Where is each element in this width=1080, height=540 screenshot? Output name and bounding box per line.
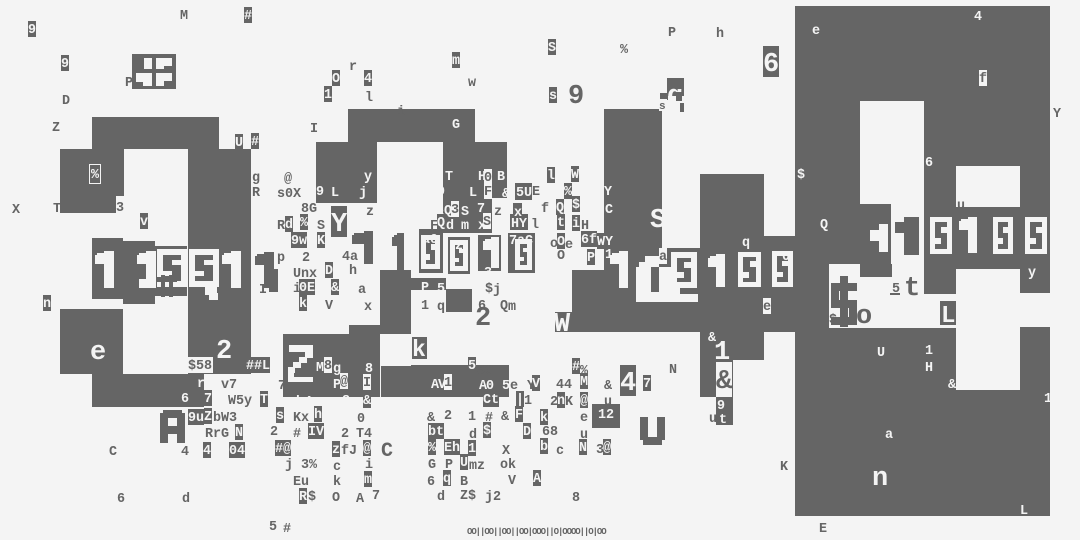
svg-text:C: C — [109, 445, 117, 460]
svg-text:@: @ — [580, 394, 588, 409]
svg-text:OO||OO||OO||OO|OOO||O|OOOO||O|: OO||OO||OO||OO|OOO||O|OOOO||O|OO — [467, 527, 607, 537]
svg-text:z: z — [477, 459, 485, 474]
svg-text:2: 2 — [341, 427, 349, 442]
svg-text:1: 1 — [444, 376, 452, 391]
svg-text:B: B — [497, 170, 505, 185]
svg-text:b: b — [428, 425, 436, 440]
svg-text:D: D — [438, 396, 446, 411]
svg-text:a: a — [350, 250, 358, 265]
svg-text:h: h — [314, 408, 322, 423]
svg-text:t: t — [491, 393, 499, 408]
svg-text:&: & — [502, 187, 510, 202]
svg-text:N: N — [579, 441, 587, 456]
svg-text:C: C — [605, 203, 613, 218]
svg-text:Q: Q — [820, 218, 828, 233]
svg-text:u: u — [196, 411, 204, 426]
svg-text:u: u — [301, 475, 309, 490]
svg-text:T: T — [260, 393, 268, 408]
svg-text:E: E — [293, 475, 301, 490]
svg-text:k: k — [540, 411, 548, 426]
svg-text:2: 2 — [444, 409, 452, 424]
svg-text:0: 0 — [782, 250, 790, 265]
svg-text:8: 8 — [572, 491, 580, 506]
svg-text:t: t — [436, 425, 444, 440]
svg-text:5: 5 — [437, 282, 445, 297]
svg-text:P: P — [668, 26, 676, 41]
svg-text:V: V — [325, 299, 334, 314]
svg-text:1: 1 — [421, 299, 429, 314]
svg-text:E: E — [444, 441, 452, 456]
svg-text:M: M — [316, 361, 324, 376]
svg-text:k: k — [508, 458, 516, 473]
svg-text:3: 3 — [451, 203, 459, 218]
svg-text:z: z — [494, 205, 502, 220]
svg-text:e: e — [763, 300, 771, 315]
svg-text:V: V — [508, 474, 517, 489]
svg-text:7: 7 — [509, 234, 517, 249]
svg-text:%: % — [300, 216, 309, 231]
svg-text:H: H — [925, 361, 933, 376]
svg-text:p: p — [277, 251, 285, 266]
svg-text:1: 1 — [605, 248, 613, 263]
svg-text:I: I — [310, 122, 318, 137]
svg-text:e: e — [580, 411, 588, 426]
svg-text:Z: Z — [460, 489, 468, 504]
svg-text:Z: Z — [204, 410, 212, 425]
svg-text:h: h — [716, 27, 724, 42]
svg-text:$: $ — [308, 490, 316, 505]
svg-text:R: R — [252, 186, 261, 201]
svg-text:U: U — [235, 136, 243, 151]
svg-text:8: 8 — [550, 425, 558, 440]
svg-text:&: & — [363, 394, 371, 409]
svg-text:7: 7 — [229, 378, 237, 393]
svg-text:g: g — [252, 171, 260, 186]
svg-text:i: i — [572, 217, 580, 232]
svg-text:j: j — [485, 490, 493, 505]
svg-text:r: r — [213, 427, 221, 442]
svg-text:3: 3 — [484, 266, 492, 281]
svg-text:8: 8 — [204, 359, 212, 374]
svg-text:$: $ — [485, 282, 493, 297]
svg-text:2: 2 — [302, 251, 310, 266]
svg-text:L: L — [262, 359, 270, 374]
svg-text:K: K — [317, 234, 326, 249]
svg-text:1: 1 — [598, 408, 606, 423]
svg-text:j: j — [359, 186, 367, 201]
svg-text:5: 5 — [477, 364, 485, 379]
svg-text:%: % — [309, 458, 318, 473]
svg-text:n: n — [43, 297, 51, 312]
svg-text:k: k — [412, 337, 426, 363]
svg-text:f: f — [979, 72, 987, 87]
svg-text:z: z — [332, 443, 340, 458]
svg-text:n: n — [557, 394, 565, 409]
svg-text:4: 4 — [181, 445, 189, 460]
svg-text:B: B — [460, 475, 468, 490]
svg-text:W: W — [597, 235, 606, 250]
svg-text:5: 5 — [196, 359, 204, 374]
svg-text:c: c — [333, 460, 341, 475]
svg-text:6: 6 — [763, 50, 779, 80]
svg-text:S: S — [650, 206, 666, 236]
svg-text:L: L — [941, 303, 955, 330]
svg-text:G: G — [221, 427, 229, 442]
svg-text:Q: Q — [556, 201, 564, 216]
svg-text:W: W — [554, 310, 571, 340]
svg-text:4: 4 — [237, 444, 245, 459]
svg-text:t: t — [557, 216, 565, 231]
svg-text:U: U — [524, 186, 532, 201]
svg-text:&: & — [604, 379, 612, 394]
svg-text:L: L — [1020, 504, 1028, 519]
svg-text:&: & — [708, 331, 716, 346]
svg-text:t: t — [904, 274, 920, 304]
svg-text:3: 3 — [301, 458, 309, 473]
svg-text:8: 8 — [342, 394, 350, 409]
svg-text:S: S — [483, 215, 491, 230]
svg-text:Q: Q — [500, 299, 508, 314]
svg-text:I: I — [308, 425, 316, 440]
svg-text:w: w — [299, 234, 307, 249]
svg-text:4: 4 — [364, 427, 372, 442]
svg-text:1: 1 — [1044, 392, 1052, 407]
svg-text:F: F — [515, 408, 523, 423]
svg-text:K: K — [565, 395, 574, 410]
svg-text:X: X — [293, 187, 302, 202]
svg-text:9: 9 — [188, 411, 196, 426]
svg-text:P: P — [421, 281, 429, 296]
svg-text:Q: Q — [437, 216, 445, 231]
svg-text:m: m — [461, 219, 469, 234]
svg-text:G: G — [309, 202, 317, 217]
svg-text:&: & — [716, 367, 733, 397]
svg-text:R: R — [299, 490, 308, 505]
svg-text:N: N — [669, 363, 677, 378]
svg-text:E: E — [819, 522, 827, 537]
svg-text:m: m — [469, 459, 477, 474]
svg-text:l: l — [531, 218, 539, 233]
svg-text:#: # — [283, 522, 291, 537]
svg-text:d: d — [182, 492, 190, 507]
svg-text:C: C — [485, 364, 493, 379]
svg-text:A: A — [356, 492, 365, 507]
svg-text:u: u — [709, 412, 717, 427]
svg-text:2: 2 — [606, 408, 614, 423]
svg-text:#: # — [572, 360, 580, 375]
svg-text:4: 4 — [364, 72, 372, 87]
svg-text:%: % — [428, 441, 437, 456]
svg-text:%: % — [91, 168, 100, 183]
svg-text:#: # — [244, 9, 252, 24]
svg-text:1: 1 — [925, 344, 933, 359]
svg-text:2: 2 — [216, 337, 232, 367]
svg-text:U: U — [877, 346, 885, 361]
svg-text:1: 1 — [324, 88, 332, 103]
svg-text:M: M — [180, 9, 188, 24]
svg-text:E: E — [307, 281, 315, 296]
svg-text:d: d — [437, 490, 445, 505]
svg-text:4: 4 — [203, 444, 211, 459]
svg-text:2: 2 — [270, 425, 278, 440]
svg-text:x: x — [301, 411, 309, 426]
svg-text:W: W — [571, 168, 580, 183]
svg-text:k: k — [299, 297, 307, 312]
svg-text:4: 4 — [620, 369, 636, 399]
svg-text:D: D — [62, 94, 70, 109]
svg-text:9: 9 — [568, 82, 584, 112]
svg-text:i: i — [365, 458, 373, 473]
svg-text:O: O — [332, 491, 340, 506]
svg-text:6: 6 — [117, 492, 125, 507]
svg-text:9: 9 — [437, 185, 445, 200]
svg-text:@: @ — [284, 172, 292, 187]
svg-text:V: V — [532, 377, 541, 392]
svg-text:9: 9 — [717, 399, 725, 414]
svg-text:7: 7 — [278, 379, 286, 394]
svg-text:x: x — [364, 300, 372, 315]
svg-text:$: $ — [483, 424, 491, 439]
svg-text:X: X — [12, 203, 21, 218]
svg-text:&: & — [948, 378, 956, 393]
svg-text:@: @ — [340, 375, 348, 390]
svg-text:4: 4 — [304, 395, 312, 410]
svg-text:f: f — [341, 444, 349, 459]
svg-text:$: $ — [188, 359, 196, 374]
svg-text:d: d — [446, 219, 454, 234]
svg-text:s: s — [659, 101, 666, 113]
svg-text:6: 6 — [427, 475, 435, 490]
svg-text:T: T — [53, 202, 61, 217]
svg-text:$: $ — [572, 198, 580, 213]
svg-text:h: h — [349, 264, 357, 279]
svg-text:o: o — [856, 302, 872, 332]
svg-text:D: D — [325, 264, 333, 279]
svg-text:S: S — [548, 41, 556, 56]
svg-text:I: I — [259, 283, 267, 298]
svg-text:s: s — [549, 89, 557, 104]
svg-text:T: T — [445, 170, 453, 185]
svg-text:P: P — [587, 251, 595, 266]
svg-text:P: P — [125, 76, 133, 91]
svg-text:7: 7 — [643, 377, 651, 392]
svg-text:D: D — [523, 425, 531, 440]
svg-text:6: 6 — [925, 156, 933, 171]
svg-text:S: S — [317, 219, 325, 234]
svg-text:u: u — [604, 395, 612, 410]
svg-text:C: C — [525, 234, 533, 249]
svg-text:a: a — [885, 428, 893, 443]
svg-text:$: $ — [468, 489, 476, 504]
svg-text:0: 0 — [229, 444, 237, 459]
svg-text:U: U — [460, 456, 468, 471]
svg-text:&: & — [331, 281, 339, 296]
svg-text:9: 9 — [316, 185, 324, 200]
svg-text:e: e — [812, 24, 820, 39]
svg-text:6: 6 — [181, 392, 189, 407]
svg-text:4: 4 — [564, 378, 572, 393]
svg-text:s: s — [276, 409, 284, 424]
svg-text:o: o — [500, 458, 508, 473]
svg-text:Y: Y — [331, 210, 348, 240]
svg-text:4: 4 — [342, 250, 350, 265]
svg-text:0: 0 — [285, 187, 293, 202]
svg-text:5: 5 — [516, 186, 524, 201]
svg-text:6: 6 — [542, 425, 550, 440]
svg-text:2: 2 — [493, 490, 501, 505]
svg-text:0: 0 — [484, 171, 492, 186]
svg-text:9: 9 — [61, 57, 69, 72]
svg-text:V: V — [316, 425, 325, 440]
svg-text:b: b — [213, 411, 221, 426]
svg-text:3: 3 — [229, 411, 237, 426]
svg-text:C: C — [381, 440, 393, 463]
svg-text:7: 7 — [204, 392, 212, 407]
svg-text:9: 9 — [28, 23, 36, 38]
svg-text:l: l — [547, 169, 555, 184]
svg-text:N: N — [235, 426, 243, 441]
svg-text:q: q — [437, 300, 445, 315]
svg-text:G: G — [452, 118, 460, 133]
svg-text:u: u — [957, 199, 965, 214]
svg-text:y: y — [244, 394, 252, 409]
svg-text:1: 1 — [468, 410, 476, 425]
svg-text:C: C — [483, 393, 491, 408]
svg-text:v: v — [221, 378, 229, 393]
svg-text:i: i — [397, 105, 405, 120]
svg-text:O: O — [332, 72, 340, 87]
svg-text:L: L — [469, 186, 477, 201]
svg-text:d: d — [285, 218, 293, 233]
svg-text:e: e — [565, 238, 573, 253]
svg-text:6: 6 — [478, 299, 486, 314]
svg-text:Y: Y — [519, 217, 528, 232]
svg-text:y: y — [1028, 266, 1036, 281]
svg-text:6: 6 — [581, 233, 589, 248]
svg-text:H: H — [511, 217, 519, 232]
svg-text:r: r — [197, 377, 205, 392]
svg-text:v: v — [140, 215, 148, 230]
svg-text:w: w — [468, 76, 476, 91]
svg-text:&: & — [501, 410, 509, 425]
svg-text:1: 1 — [468, 442, 476, 457]
svg-text:M: M — [580, 375, 588, 390]
svg-text:$: $ — [829, 313, 837, 328]
svg-text:n: n — [872, 464, 888, 494]
svg-text:y: y — [364, 170, 372, 185]
svg-text:m: m — [452, 54, 460, 69]
svg-text:I: I — [363, 376, 371, 391]
svg-text:8: 8 — [324, 359, 332, 374]
svg-text:#: # — [254, 359, 262, 374]
svg-text:G: G — [428, 458, 436, 473]
svg-text:a: a — [422, 233, 430, 248]
svg-text:e: e — [90, 338, 106, 368]
svg-text:@: @ — [603, 441, 611, 456]
svg-text:j: j — [285, 458, 293, 473]
svg-text:l: l — [365, 91, 373, 106]
svg-text:m: m — [364, 473, 372, 488]
svg-text:0: 0 — [357, 412, 365, 427]
svg-text:%: % — [620, 43, 629, 58]
svg-text:K: K — [780, 460, 789, 475]
svg-text:$: $ — [797, 168, 805, 183]
svg-text:5: 5 — [236, 394, 244, 409]
svg-text:m: m — [508, 300, 516, 315]
svg-text:|: | — [516, 393, 524, 408]
svg-text:c: c — [556, 444, 564, 459]
svg-text:a: a — [358, 283, 366, 298]
svg-text:q: q — [443, 472, 451, 487]
svg-text:b: b — [540, 440, 548, 455]
svg-text:b: b — [296, 395, 304, 410]
svg-text:#: # — [293, 427, 301, 442]
svg-text:z: z — [455, 239, 463, 254]
svg-text:j: j — [493, 283, 501, 298]
svg-text:t: t — [719, 413, 727, 428]
svg-text:5: 5 — [502, 379, 510, 394]
svg-text:Z: Z — [52, 121, 60, 136]
svg-text:S: S — [461, 205, 469, 220]
svg-text:4: 4 — [974, 10, 982, 25]
svg-text:q: q — [742, 236, 750, 251]
svg-text:@: @ — [363, 442, 371, 457]
svg-text:J: J — [349, 444, 357, 459]
svg-text:s: s — [277, 187, 285, 202]
svg-text:4: 4 — [556, 378, 564, 393]
svg-text:#: # — [275, 442, 283, 457]
svg-text:r: r — [349, 60, 357, 75]
svg-text:O: O — [557, 235, 565, 250]
svg-text:a: a — [659, 250, 667, 265]
svg-text:Y: Y — [604, 185, 613, 200]
svg-text:E: E — [532, 185, 540, 200]
svg-text:7: 7 — [372, 489, 380, 504]
svg-text:3: 3 — [116, 201, 124, 216]
svg-text:#: # — [246, 359, 254, 374]
svg-text:a: a — [517, 234, 525, 249]
svg-text:5: 5 — [269, 520, 277, 535]
svg-text:0: 0 — [430, 233, 438, 248]
svg-text:f: f — [541, 202, 549, 217]
svg-text:L: L — [331, 186, 339, 201]
svg-text:F: F — [484, 185, 492, 200]
svg-text:z: z — [366, 205, 374, 220]
svg-text:Y: Y — [1053, 107, 1062, 122]
svg-text:5: 5 — [468, 359, 476, 374]
svg-text:f: f — [589, 233, 597, 248]
svg-text:0: 0 — [299, 281, 307, 296]
svg-text:X: X — [502, 444, 511, 459]
svg-text:O: O — [557, 249, 565, 264]
svg-text:T: T — [356, 427, 364, 442]
svg-text:@: @ — [283, 442, 291, 457]
svg-text:A: A — [533, 472, 542, 487]
svg-text:#: # — [251, 135, 259, 150]
svg-text:h: h — [452, 441, 460, 456]
svg-text:1: 1 — [524, 394, 532, 409]
svg-text:9: 9 — [291, 234, 299, 249]
svg-text:k: k — [333, 475, 341, 490]
